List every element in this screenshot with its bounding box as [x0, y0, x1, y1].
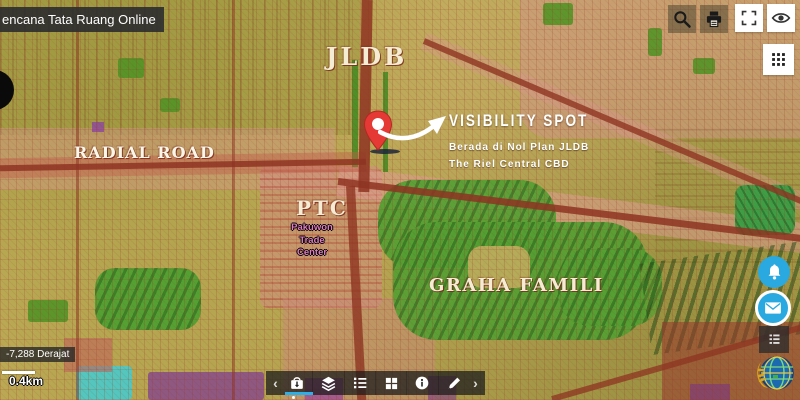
- fullscreen-icon: [740, 9, 758, 27]
- label-visibility-line1: Berada di Nol Plan JLDB: [449, 142, 589, 153]
- layers-icon: [320, 375, 337, 392]
- legend-panel-icon: [767, 332, 782, 347]
- annotation-arrow-icon: [378, 114, 448, 149]
- visibility-eye-button[interactable]: [767, 4, 795, 32]
- map-app: JLDB RADIAL ROAD PTC Pakuwon Trade Cente…: [0, 0, 800, 400]
- search-button[interactable]: [668, 5, 696, 33]
- coordinates-readout: -7,288 Derajat: [0, 347, 75, 362]
- basemap-bag-icon: [289, 375, 305, 391]
- info-button[interactable]: [406, 371, 437, 395]
- label-radial-road: RADIAL ROAD: [74, 143, 215, 162]
- legend-list-button[interactable]: [344, 371, 375, 395]
- label-ptc: PTC: [296, 196, 348, 220]
- label-graha-famili: GRAHA FAMILI: [429, 275, 604, 296]
- scale-label: 0.4km: [9, 374, 43, 388]
- map-road: [76, 0, 79, 400]
- toolbar-page-dot: [292, 396, 295, 399]
- grid-view-button[interactable]: [375, 371, 406, 395]
- bell-icon: [766, 263, 783, 281]
- measure-pencil-button[interactable]: [438, 371, 469, 395]
- fullscreen-button[interactable]: [735, 4, 763, 32]
- legend-list-icon: [352, 375, 368, 391]
- label-line: Pakuwon: [289, 222, 335, 235]
- toolbar-active-indicator: [285, 392, 313, 395]
- label-line: Center: [289, 247, 335, 260]
- map-road: [232, 0, 235, 400]
- eye-icon: [771, 10, 791, 26]
- label-pakuwon-trade-center: Pakuwon Trade Center: [289, 222, 335, 260]
- measure-pencil-icon: [446, 375, 462, 391]
- grid-icon: [384, 376, 399, 391]
- print-button[interactable]: [700, 5, 728, 33]
- app-title-bar: encana Tata Ruang Online: [0, 7, 164, 32]
- envelope-icon: [764, 301, 782, 315]
- legend-panel-button[interactable]: [759, 326, 789, 353]
- apps-grid-button[interactable]: [763, 44, 794, 75]
- layers-button[interactable]: [312, 371, 343, 395]
- apps-grid-icon: [770, 51, 787, 68]
- toolbar-chevron-left[interactable]: ‹: [269, 371, 282, 395]
- label-visibility-spot: VISIBILITY SPOT: [449, 111, 588, 131]
- info-icon: [414, 375, 430, 391]
- ministry-globe-logo: [752, 351, 798, 400]
- notification-bell-button[interactable]: [758, 256, 790, 288]
- label-visibility-line2: The Riel Central CBD: [449, 159, 570, 170]
- search-icon: [672, 9, 692, 29]
- message-button[interactable]: [755, 290, 791, 326]
- printer-icon: [704, 9, 724, 29]
- label-line: Trade: [289, 235, 335, 248]
- toolbar-chevron-right[interactable]: ›: [469, 371, 482, 395]
- label-jldb: JLDB: [326, 42, 407, 71]
